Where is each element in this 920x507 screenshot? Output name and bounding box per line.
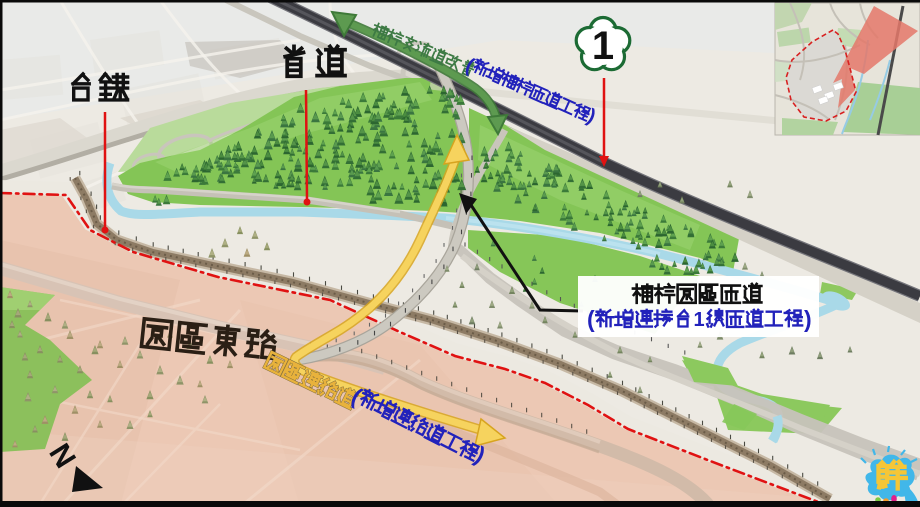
svg-text:1: 1 xyxy=(694,309,705,331)
svg-text:1: 1 xyxy=(592,24,614,68)
svg-text:(: ( xyxy=(587,306,595,332)
svg-text:): ) xyxy=(804,306,812,332)
